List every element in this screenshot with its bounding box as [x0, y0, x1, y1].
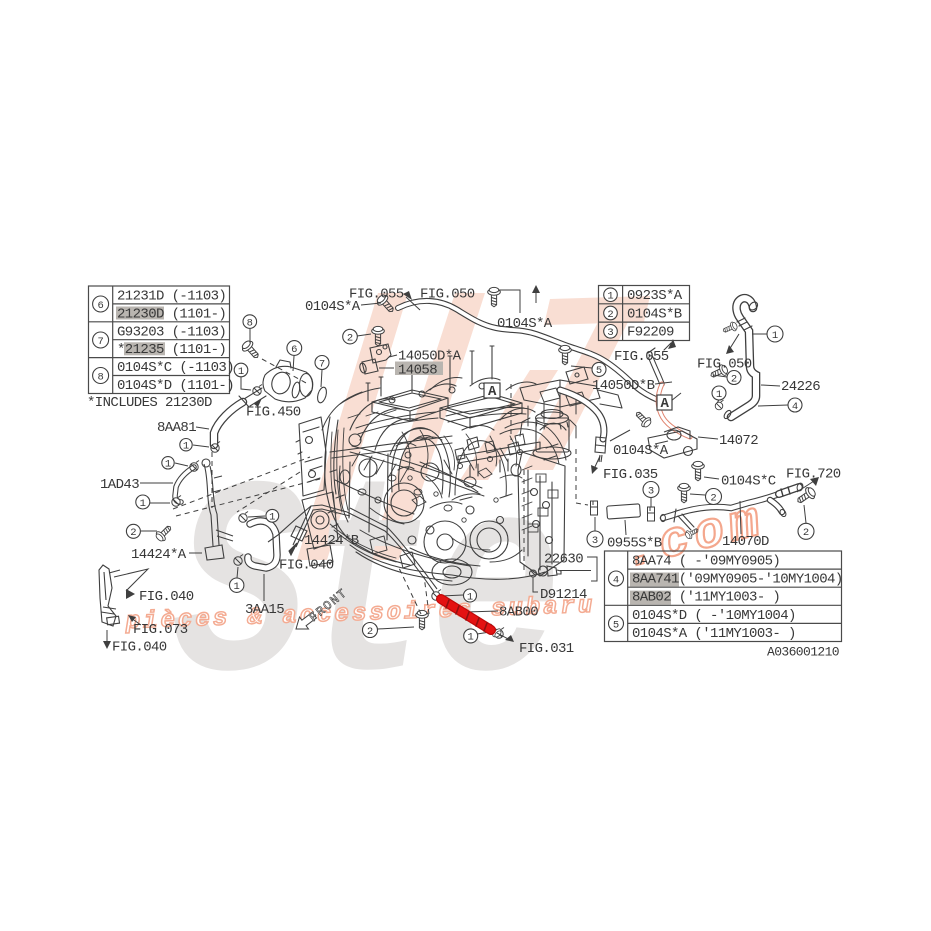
svg-text:1: 1 — [269, 512, 275, 524]
svg-text:1: 1 — [467, 591, 473, 603]
svg-text:6: 6 — [291, 344, 297, 356]
svg-text:8AA74 ( -'09MY0905): 8AA74 ( -'09MY0905) — [632, 554, 780, 570]
svg-text:6: 6 — [97, 300, 103, 312]
svg-text:0104S*D ( -'10MY1004): 0104S*D ( -'10MY1004) — [632, 608, 796, 624]
svg-text:FIG.055: FIG.055 — [614, 349, 669, 365]
svg-text:8AA81: 8AA81 — [157, 420, 196, 436]
svg-text:FIG.050: FIG.050 — [420, 287, 475, 303]
svg-text:2: 2 — [130, 527, 136, 539]
svg-text:2: 2 — [367, 626, 373, 638]
svg-text:1: 1 — [468, 632, 474, 644]
svg-text:G93203 (-1103): G93203 (-1103) — [117, 324, 226, 340]
svg-text:2: 2 — [803, 527, 809, 539]
svg-text:7: 7 — [319, 358, 325, 370]
svg-text:14072: 14072 — [719, 433, 758, 449]
svg-text:0923S*A: 0923S*A — [627, 288, 683, 304]
svg-text:A036001210: A036001210 — [767, 645, 839, 660]
svg-text:D91214: D91214 — [540, 587, 587, 603]
svg-text:21230D (1101-): 21230D (1101-) — [117, 306, 226, 322]
svg-text:1: 1 — [183, 441, 189, 453]
svg-text:FIG.073: FIG.073 — [133, 622, 188, 638]
svg-text:A: A — [488, 384, 497, 400]
svg-text:5: 5 — [613, 619, 619, 631]
svg-text:FIG.035: FIG.035 — [603, 467, 658, 483]
svg-text:A: A — [661, 396, 670, 412]
svg-text:1AD43: 1AD43 — [100, 477, 139, 493]
svg-text:2: 2 — [731, 373, 737, 385]
svg-text:14424*A: 14424*A — [131, 547, 187, 563]
svg-text:14058: 14058 — [398, 363, 437, 379]
svg-text:Ste: Ste — [174, 435, 558, 752]
svg-text:FIG.040: FIG.040 — [139, 589, 194, 605]
svg-text:8: 8 — [97, 371, 103, 383]
svg-text:FIG.040: FIG.040 — [112, 640, 167, 656]
svg-text:14050D*B: 14050D*B — [592, 378, 655, 394]
svg-text:0104S*A: 0104S*A — [497, 316, 553, 332]
svg-text:3: 3 — [648, 485, 654, 497]
svg-text:1: 1 — [238, 366, 244, 378]
svg-text:0104S*B: 0104S*B — [627, 306, 682, 322]
svg-text:8: 8 — [247, 317, 253, 329]
svg-text:1: 1 — [234, 581, 240, 593]
svg-text:0955S*B: 0955S*B — [607, 536, 662, 552]
svg-text:FIG.040: FIG.040 — [279, 558, 334, 574]
svg-text:FIG.031: FIG.031 — [519, 641, 574, 657]
svg-text:FIG.720: FIG.720 — [786, 467, 841, 483]
svg-text:8AB00: 8AB00 — [499, 605, 538, 621]
svg-text:14424*B: 14424*B — [304, 533, 359, 549]
svg-text:1: 1 — [165, 459, 171, 471]
svg-text:14070D: 14070D — [722, 534, 769, 550]
svg-text:4: 4 — [613, 574, 619, 586]
svg-text:3AA15: 3AA15 — [245, 602, 284, 618]
svg-text:1: 1 — [716, 389, 722, 401]
svg-text:22630: 22630 — [544, 552, 583, 568]
svg-text:2: 2 — [710, 492, 716, 504]
svg-text:0104S*C (-1103): 0104S*C (-1103) — [117, 360, 234, 376]
svg-text:8AB02 ('11MY1003- ): 8AB02 ('11MY1003- ) — [632, 590, 780, 606]
svg-text:0104S*D (1101-): 0104S*D (1101-) — [117, 378, 234, 394]
svg-text:7: 7 — [97, 336, 103, 348]
svg-text:0104S*A: 0104S*A — [305, 299, 361, 315]
svg-text:3: 3 — [607, 327, 613, 339]
svg-text:F92209: F92209 — [627, 325, 674, 341]
svg-text:0104S*C: 0104S*C — [721, 474, 776, 490]
svg-text:2: 2 — [607, 309, 613, 321]
svg-text:*INCLUDES 21230D: *INCLUDES 21230D — [87, 395, 212, 411]
svg-text:24226: 24226 — [781, 379, 820, 395]
svg-text:FIG.450: FIG.450 — [246, 405, 301, 421]
svg-text:0104S*A: 0104S*A — [613, 443, 669, 459]
svg-text:1: 1 — [772, 330, 778, 342]
svg-text:0104S*A ('11MY1003- ): 0104S*A ('11MY1003- ) — [632, 626, 796, 642]
svg-text:FIG.050: FIG.050 — [697, 357, 752, 373]
svg-text:5: 5 — [596, 365, 602, 377]
svg-text:*21235 (1101-): *21235 (1101-) — [117, 342, 226, 358]
svg-text:2: 2 — [347, 332, 353, 344]
svg-text:1: 1 — [140, 498, 146, 510]
svg-text:8AA741('09MY0905-'10MY1004): 8AA741('09MY0905-'10MY1004) — [632, 572, 843, 588]
svg-text:21231D (-1103): 21231D (-1103) — [117, 289, 226, 305]
svg-text:3: 3 — [592, 535, 598, 547]
svg-text:4: 4 — [792, 401, 798, 413]
svg-text:1: 1 — [607, 291, 613, 303]
